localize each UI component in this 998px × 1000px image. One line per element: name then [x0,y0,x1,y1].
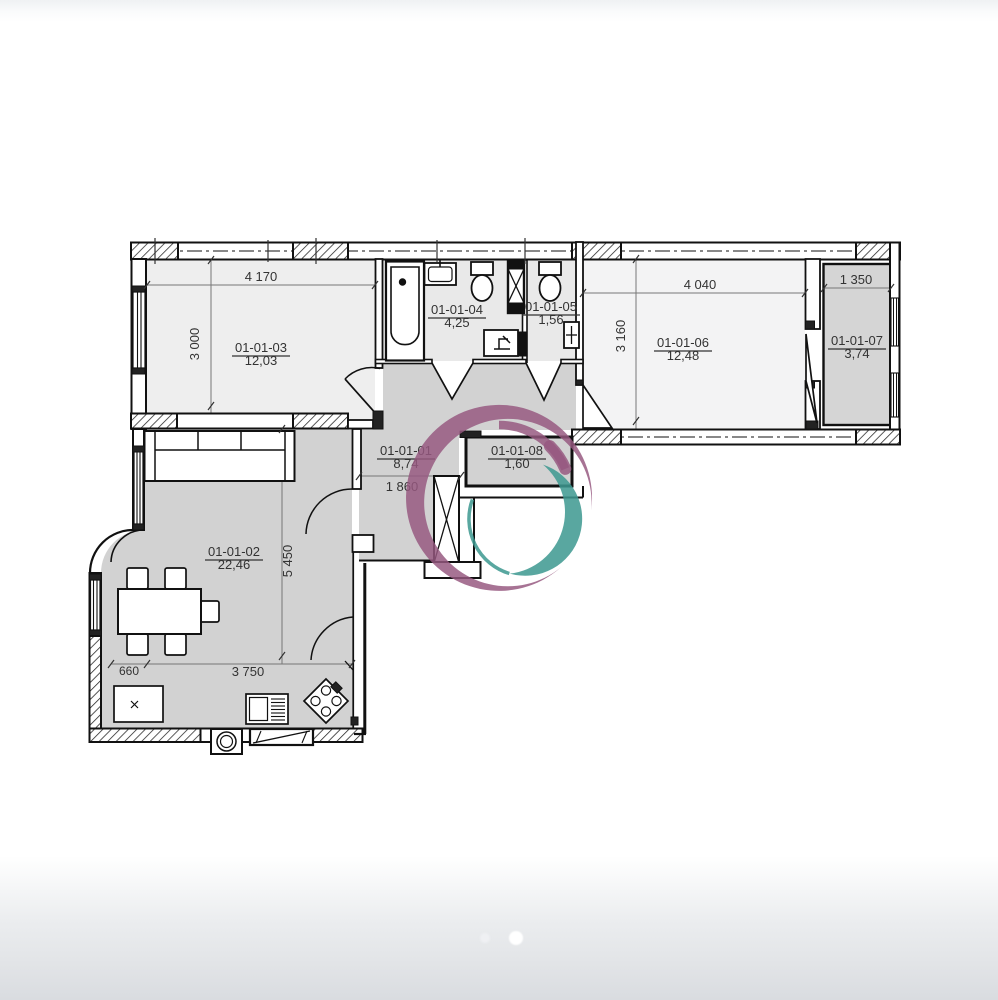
svg-text:1 350: 1 350 [840,272,873,287]
svg-text:4,25: 4,25 [444,315,469,330]
svg-text:3,74: 3,74 [844,346,869,361]
svg-text:22,46: 22,46 [218,557,251,572]
svg-text:12,03: 12,03 [245,353,278,368]
svg-text:3 160: 3 160 [613,320,628,353]
svg-text:12,48: 12,48 [667,348,700,363]
svg-text:3 750: 3 750 [232,664,265,679]
svg-text:4 040: 4 040 [684,277,717,292]
svg-text:660: 660 [119,664,139,678]
svg-text:5 450: 5 450 [280,545,295,578]
svg-text:4 170: 4 170 [245,269,278,284]
svg-text:3 000: 3 000 [187,328,202,361]
svg-text:1,56: 1,56 [538,312,563,327]
svg-text:1,60: 1,60 [504,456,529,471]
